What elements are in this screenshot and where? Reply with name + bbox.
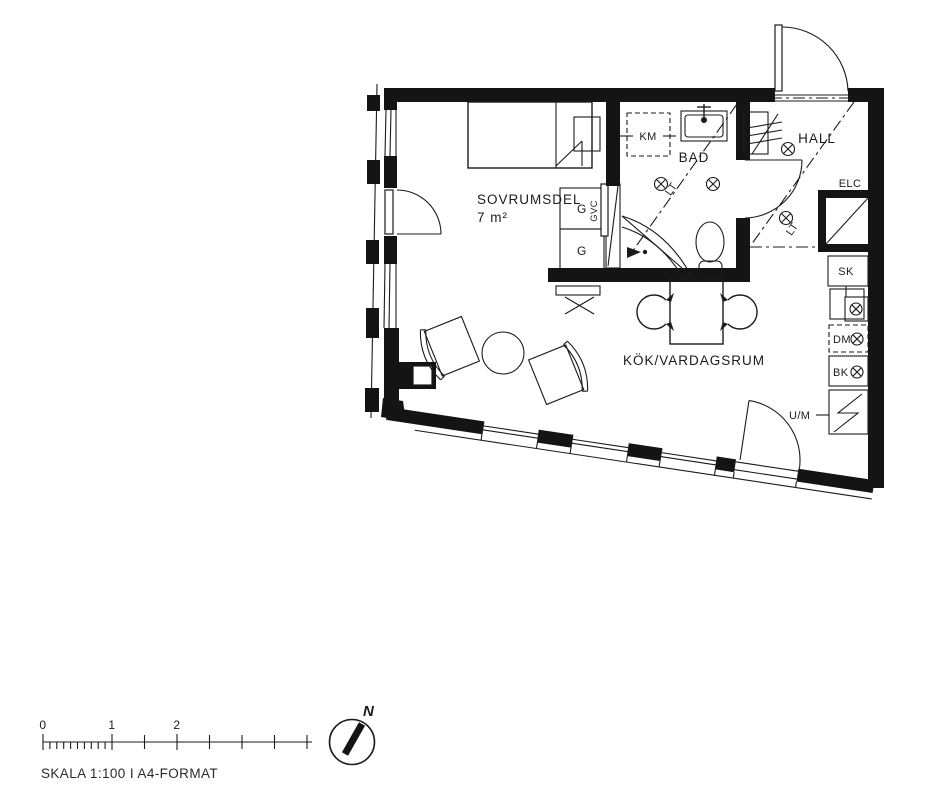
kitchen-sink-unit — [830, 286, 868, 321]
washing-machine: KM — [620, 113, 676, 156]
floor-plan-drawing: SOVRUMSDEL 7 m² G G GVC — [0, 0, 942, 801]
entrance-door — [770, 25, 854, 101]
bedroom-area: 7 m² — [477, 210, 508, 225]
bedroom: SOVRUMSDEL 7 m² G G GVC — [468, 102, 620, 314]
um-label: U/M — [789, 410, 810, 422]
left-balcony-door — [385, 190, 441, 234]
bk-label: BK — [833, 367, 849, 379]
armchair-icon — [527, 339, 593, 407]
ceiling-light-icon — [782, 143, 795, 156]
scale-tick-2: 2 — [173, 718, 180, 732]
dm-label: DM — [833, 334, 851, 346]
bedroom-label: SOVRUMSDEL — [477, 192, 582, 207]
left-window-2 — [384, 264, 396, 328]
scale-caption: SKALA 1:100 I A4-FORMAT — [41, 766, 218, 781]
elc-label: ELC — [839, 178, 862, 190]
kitchen-living: KÖK/VARDAGSRUM — [415, 278, 765, 407]
bathroom-label: BAD — [679, 150, 710, 165]
wardrobe-b: G — [560, 229, 604, 270]
left-balcony-rail — [365, 84, 380, 418]
bathroom-door — [745, 160, 802, 218]
oven-microwave: U/M — [789, 390, 868, 434]
column — [413, 366, 432, 385]
bottom-wall — [385, 348, 883, 499]
kitchen-living-label: KÖK/VARDAGSRUM — [623, 353, 765, 368]
dining-table-icon — [670, 278, 723, 344]
ceiling-light-icon — [707, 178, 720, 191]
north-arrow-icon: N — [330, 703, 376, 765]
dishwasher: DM — [829, 325, 868, 352]
scale-bar: 0 1 2 SKALA 1:100 I A4-FORMAT — [39, 718, 312, 781]
fridge-freezer: BK — [829, 356, 868, 386]
dining-chair-icon — [720, 293, 757, 331]
bath-ceiling-mark: LT — [663, 181, 680, 198]
north-label: N — [363, 703, 375, 720]
dining-chair-icon — [637, 293, 674, 331]
fold-bench-icon — [556, 286, 600, 314]
hall: HALL LT ELC — [744, 102, 868, 252]
left-window-1 — [385, 110, 396, 156]
floor-plan-page: SOVRUMSDEL 7 m² G G GVC — [0, 0, 942, 801]
wardrobe-a-label: G — [577, 202, 587, 216]
scale-tick-1: 1 — [108, 718, 115, 732]
round-table-icon — [482, 332, 524, 374]
sink-icon — [681, 104, 727, 141]
kitchen-units: SK DM BK U/M — [789, 256, 868, 434]
tall-cabinet: SK — [828, 256, 868, 286]
sk-label: SK — [838, 266, 854, 278]
electrical-cabinet: ELC — [818, 178, 868, 252]
washing-machine-label: KM — [639, 131, 656, 143]
bed-icon — [468, 102, 600, 168]
sliding-door-label: GVC — [589, 200, 600, 222]
hall-ceiling-mark: LT — [784, 221, 801, 238]
hall-label: HALL — [798, 131, 836, 146]
scale-tick-0: 0 — [39, 718, 46, 732]
toilet-icon — [696, 222, 724, 275]
wardrobe-b-label: G — [577, 244, 587, 258]
